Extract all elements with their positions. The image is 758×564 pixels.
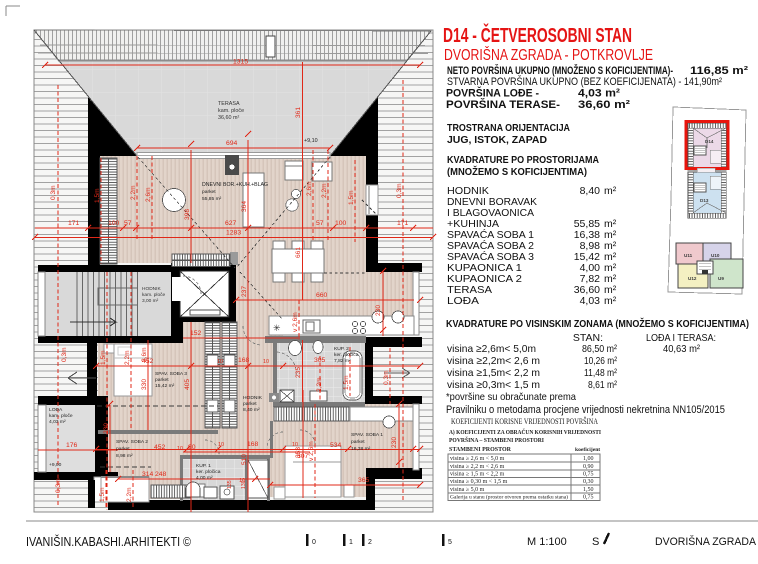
svg-text:4,03: 4,03 xyxy=(580,295,601,307)
svg-text:STVARNA POVRŠINA UKUPNO (BEZ K: STVARNA POVRŠINA UKUPNO (BEZ KOEFICIJENA… xyxy=(447,75,722,88)
svg-text:86,50 m²: 86,50 m² xyxy=(582,343,617,355)
svg-text:+9,00: +9,00 xyxy=(49,462,62,468)
svg-text:HODNIK: HODNIK xyxy=(243,395,263,401)
svg-text:248: 248 xyxy=(155,471,167,478)
svg-text:POVRŠINA LOĐE -: POVRŠINA LOĐE - xyxy=(446,87,539,100)
svg-text:2,6m: 2,6m xyxy=(145,187,152,202)
svg-text:4,03 m²: 4,03 m² xyxy=(578,88,620,100)
svg-text:D14 - ČETVEROSOBNI STAN: D14 - ČETVEROSOBNI STAN xyxy=(443,23,632,47)
svg-text:0,75: 0,75 xyxy=(583,495,594,501)
svg-text:KUP. 1: KUP. 1 xyxy=(196,463,211,469)
svg-text:parket: parket xyxy=(202,189,216,195)
svg-text:DVORIŠNA ZGRADA: DVORIŠNA ZGRADA xyxy=(655,535,757,548)
svg-text:parket: parket xyxy=(351,439,365,445)
svg-text:0,3m: 0,3m xyxy=(396,183,403,198)
svg-text:8,61 m²: 8,61 m² xyxy=(588,379,617,391)
svg-text:DNEVNI BOR.+KUH.+BLAG: DNEVNI BOR.+KUH.+BLAG xyxy=(202,182,268,188)
svg-text:8,40: 8,40 xyxy=(580,185,601,197)
svg-text:KUP. 2: KUP. 2 xyxy=(334,346,349,352)
svg-text:ker. pločica: ker. pločica xyxy=(334,352,359,358)
svg-text:POVRŠINA TERASE-: POVRŠINA TERASE- xyxy=(446,98,560,111)
svg-text:S: S xyxy=(592,536,599,548)
svg-text:2,2m: 2,2m xyxy=(126,487,133,502)
svg-text:visina ≥1,5m< 2,2 m: visina ≥1,5m< 2,2 m xyxy=(447,367,540,379)
svg-text:230: 230 xyxy=(375,305,382,316)
svg-text:57: 57 xyxy=(124,220,132,227)
svg-text:U9: U9 xyxy=(718,276,724,281)
svg-text:U12: U12 xyxy=(688,276,697,281)
svg-text:398: 398 xyxy=(184,209,191,220)
svg-text:M 1:100: M 1:100 xyxy=(527,536,567,548)
svg-text:171: 171 xyxy=(397,220,409,227)
svg-text:36,60 m²: 36,60 m² xyxy=(578,99,630,111)
svg-text:2,2m: 2,2m xyxy=(316,377,323,392)
svg-text:8,98 m²: 8,98 m² xyxy=(116,453,133,459)
svg-text:ker. pločica: ker. pločica xyxy=(196,469,221,475)
svg-text:627: 627 xyxy=(225,220,237,227)
svg-text:661: 661 xyxy=(295,247,302,258)
svg-text:visina ≥ 1,5 m < 2,2 m: visina ≥ 1,5 m < 2,2 m xyxy=(450,472,505,478)
svg-text:kam. ploče: kam. ploče xyxy=(49,413,73,419)
svg-text:parket: parket xyxy=(155,377,169,383)
svg-text:168: 168 xyxy=(247,441,259,448)
svg-text:A) KOEFICIJENTI ZA OBRAČUN KOR: A) KOEFICIJENTI ZA OBRAČUN KORISNIH VRIJ… xyxy=(449,428,601,436)
svg-text:11,48 m²: 11,48 m² xyxy=(584,367,617,379)
svg-text:10: 10 xyxy=(217,359,223,365)
svg-text:U10: U10 xyxy=(711,253,720,258)
svg-text:8,40 m²: 8,40 m² xyxy=(243,407,260,413)
svg-text:10: 10 xyxy=(263,359,269,365)
svg-text:visina ≥ 2,6 m < 5,0 m: visina ≥ 2,6 m < 5,0 m xyxy=(450,456,505,462)
svg-text:135: 135 xyxy=(227,480,233,489)
svg-text:2,2m: 2,2m xyxy=(124,350,131,365)
svg-text:237: 237 xyxy=(241,286,248,297)
svg-text:TROSTRANA ORIJENTACIJA: TROSTRANA ORIJENTACIJA xyxy=(447,122,570,134)
svg-text:364: 364 xyxy=(241,201,248,212)
svg-text:534: 534 xyxy=(330,442,342,449)
svg-text:176: 176 xyxy=(66,442,78,449)
svg-text:*površine su obračunate prema: *površine su obračunate prema xyxy=(446,391,576,403)
svg-text:U11: U11 xyxy=(684,253,693,258)
svg-text:visina ≥ 5,0 m: visina ≥ 5,0 m xyxy=(450,487,485,493)
svg-text:314: 314 xyxy=(142,471,154,478)
svg-text:2,2m: 2,2m xyxy=(321,183,328,198)
svg-text:100: 100 xyxy=(108,220,120,227)
svg-text:KOEFICIJENTI KORISNE VRIJEDNOS: KOEFICIJENTI KORISNE VRIJEDNOSTI POVRŠIN… xyxy=(451,417,598,426)
svg-text:1,5m: 1,5m xyxy=(343,375,350,390)
svg-text:57: 57 xyxy=(316,220,324,227)
svg-text:1315: 1315 xyxy=(233,59,248,66)
svg-text:m²: m² xyxy=(604,185,617,197)
svg-text:parket: parket xyxy=(116,446,130,452)
svg-text:D13: D13 xyxy=(700,198,709,203)
svg-text:330: 330 xyxy=(141,379,148,390)
svg-text:230: 230 xyxy=(103,423,110,434)
svg-text:660: 660 xyxy=(316,292,328,299)
svg-text:10,26 m²: 10,26 m² xyxy=(584,355,617,367)
svg-text:353: 353 xyxy=(295,447,302,458)
svg-text:0,3m: 0,3m xyxy=(61,347,68,362)
svg-text:visina ≥ 0,30 m < 1,5 m: visina ≥ 0,30 m < 1,5 m xyxy=(450,479,508,485)
svg-text:KVADRATURE PO VISINSKIM ZONAMA: KVADRATURE PO VISINSKIM ZONAMA (MNOŽEMO … xyxy=(446,317,749,330)
svg-text:visina ≥2,6m< 5,0m: visina ≥2,6m< 5,0m xyxy=(447,343,536,355)
svg-text:SPAV. SOBA 2: SPAV. SOBA 2 xyxy=(116,439,148,445)
svg-text:510: 510 xyxy=(241,454,248,465)
svg-text:(MNOŽEMO S KOFICIJENTIMA): (MNOŽEMO S KOFICIJENTIMA) xyxy=(447,165,587,178)
svg-text:+9,10: +9,10 xyxy=(304,138,318,144)
svg-text:15,42 m²: 15,42 m² xyxy=(155,383,175,389)
svg-text:2,6m: 2,6m xyxy=(306,181,313,196)
svg-text:SPAV. SOBA 3: SPAV. SOBA 3 xyxy=(155,371,187,377)
svg-text:230: 230 xyxy=(391,437,398,448)
svg-text:7,82 m²: 7,82 m² xyxy=(334,358,351,364)
svg-text:D14: D14 xyxy=(705,139,714,144)
svg-text:361: 361 xyxy=(295,107,302,118)
svg-text:452: 452 xyxy=(154,444,166,451)
svg-text:POVRŠINA – STAMBENI PROSTORI: POVRŠINA – STAMBENI PROSTORI xyxy=(449,436,544,444)
svg-text:16,38 m²: 16,38 m² xyxy=(351,446,371,452)
svg-text:10: 10 xyxy=(218,442,224,448)
svg-text:100: 100 xyxy=(335,220,347,227)
svg-text:168: 168 xyxy=(238,357,250,364)
svg-text:v 2,6m: v 2,6m xyxy=(292,312,299,332)
svg-text:235: 235 xyxy=(295,367,302,378)
svg-text:1: 1 xyxy=(349,539,353,546)
svg-text:0,75: 0,75 xyxy=(583,472,594,478)
svg-text:SPAV. SOBA 1: SPAV. SOBA 1 xyxy=(351,432,383,438)
svg-text:KVADRATURE PO PROSTORIJAMA: KVADRATURE PO PROSTORIJAMA xyxy=(447,154,599,166)
svg-text:2: 2 xyxy=(368,539,372,546)
svg-text:2,2m: 2,2m xyxy=(130,185,137,200)
svg-text:Pravilniku o metodama procjene: Pravilniku o metodama procjene vrijednos… xyxy=(446,404,725,416)
svg-text:2,6m: 2,6m xyxy=(141,347,148,362)
svg-text:0,3m: 0,3m xyxy=(50,185,57,200)
svg-text:1,5m: 1,5m xyxy=(94,188,101,203)
svg-text:694: 694 xyxy=(226,140,238,147)
svg-text:v 2,6m: v 2,6m xyxy=(308,441,315,461)
svg-text:1,5m: 1,5m xyxy=(99,487,106,502)
svg-text:TERASA: TERASA xyxy=(218,101,240,107)
svg-text:Galerija u stanu (prostor otvo: Galerija u stanu (prostor otvoren prema … xyxy=(450,496,568,501)
svg-text:visina ≥ 2,2 m < 2,6 m: visina ≥ 2,2 m < 2,6 m xyxy=(450,464,505,470)
svg-text:1,5m: 1,5m xyxy=(100,350,107,365)
svg-text:STAMBENI PROSTOR: STAMBENI PROSTOR xyxy=(449,447,512,453)
svg-text:0,90: 0,90 xyxy=(583,464,594,470)
svg-text:4,03 m²: 4,03 m² xyxy=(49,419,66,425)
svg-text:10: 10 xyxy=(177,446,183,452)
svg-text:365: 365 xyxy=(358,477,370,484)
svg-text:1,00: 1,00 xyxy=(583,456,594,462)
svg-text:4,00 m²: 4,00 m² xyxy=(196,475,213,481)
svg-text:55,85 m²: 55,85 m² xyxy=(202,196,222,202)
svg-text:130: 130 xyxy=(241,480,247,489)
svg-text:0,3m: 0,3m xyxy=(55,478,62,493)
svg-text:0,30: 0,30 xyxy=(583,479,594,485)
svg-text:36,60 m²: 36,60 m² xyxy=(218,115,239,121)
svg-text:✳: ✳ xyxy=(273,323,281,333)
svg-text:5: 5 xyxy=(448,539,452,546)
svg-text:0,3m: 0,3m xyxy=(383,370,390,385)
svg-text:LOĐA: LOĐA xyxy=(447,295,479,307)
svg-text:JUG, ISTOK, ZAPAD: JUG, ISTOK, ZAPAD xyxy=(447,134,547,146)
svg-text:1,50: 1,50 xyxy=(583,487,594,493)
svg-text:kam. ploče: kam. ploče xyxy=(218,108,244,114)
svg-text:3,00 m²: 3,00 m² xyxy=(142,298,159,304)
svg-text:405: 405 xyxy=(184,379,191,390)
svg-text:1283: 1283 xyxy=(226,230,241,237)
svg-text:305: 305 xyxy=(314,357,326,364)
svg-text:DVORIŠNA ZGRADA - POTKROVLJE: DVORIŠNA ZGRADA - POTKROVLJE xyxy=(444,45,653,64)
svg-text:152: 152 xyxy=(190,330,202,337)
svg-text:visina ≥2,2m< 2,6 m: visina ≥2,2m< 2,6 m xyxy=(447,355,540,367)
svg-text:90: 90 xyxy=(188,444,196,451)
svg-text:40,63 m²: 40,63 m² xyxy=(663,343,700,355)
svg-text:IVANIŠIN.KABASHI.ARHITEKTI ©: IVANIŠIN.KABASHI.ARHITEKTI © xyxy=(26,534,192,549)
svg-text:HODNIK: HODNIK xyxy=(142,286,161,292)
svg-text:0: 0 xyxy=(312,539,316,546)
svg-text:kam. ploče: kam. ploče xyxy=(142,292,166,298)
svg-text:1,5m: 1,5m xyxy=(348,190,355,205)
svg-text:koeficijent: koeficijent xyxy=(575,447,600,453)
svg-text:m²: m² xyxy=(604,295,617,307)
svg-text:LOĐA: LOĐA xyxy=(49,407,63,413)
svg-text:visina ≥0,3m< 1,5 m: visina ≥0,3m< 1,5 m xyxy=(447,379,540,391)
svg-text:171: 171 xyxy=(68,220,80,227)
svg-text:parket: parket xyxy=(243,401,257,407)
